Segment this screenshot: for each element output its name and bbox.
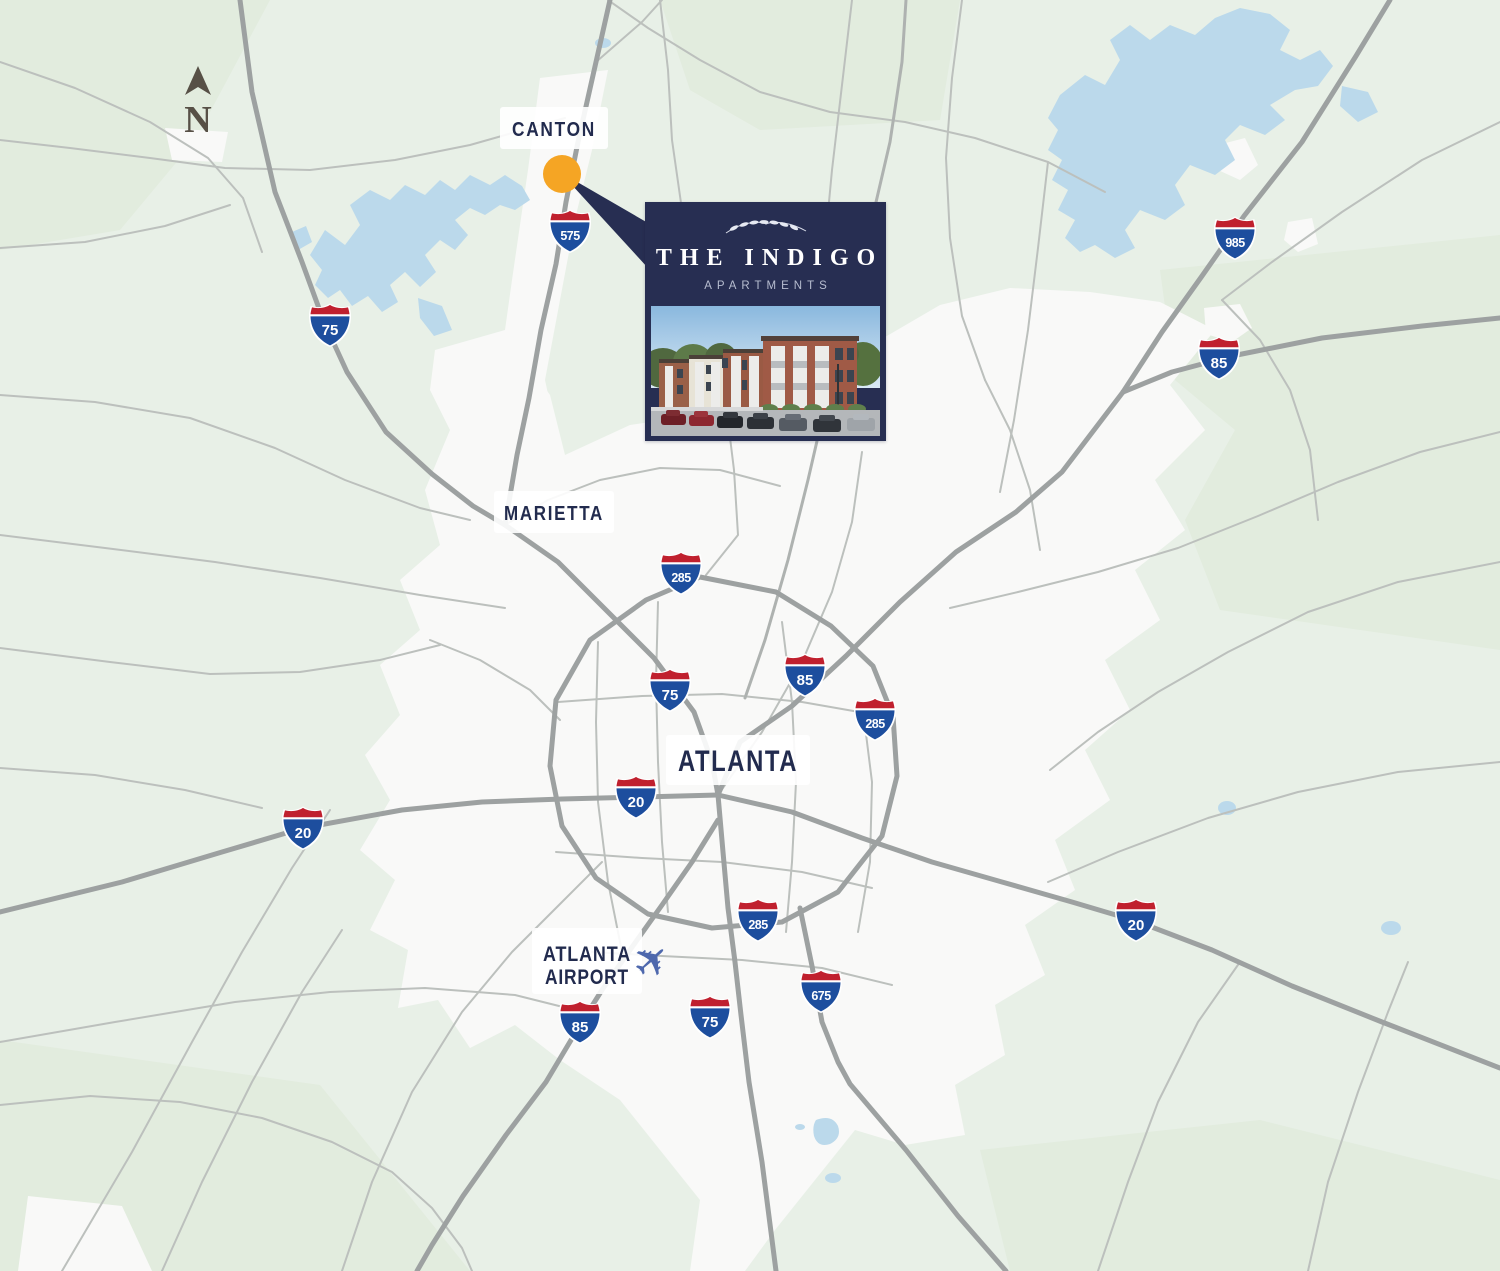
svg-text:985: 985 [1225, 236, 1245, 250]
property-name: THE INDIGO [645, 245, 886, 272]
svg-text:75: 75 [322, 322, 339, 339]
svg-text:20: 20 [295, 825, 312, 842]
svg-text:285: 285 [865, 717, 885, 731]
svg-text:20: 20 [628, 794, 645, 811]
svg-text:20: 20 [1128, 917, 1145, 934]
airport-label-line2: AIRPORT [545, 966, 629, 989]
svg-text:75: 75 [662, 687, 679, 704]
atlanta-label: ATLANTA [678, 745, 798, 778]
property-photo [651, 306, 880, 436]
property-type: APARTMENTS [645, 280, 886, 292]
svg-text:75: 75 [702, 1014, 719, 1031]
marietta-label: MARIETTA [504, 503, 604, 525]
property-location-marker [543, 155, 581, 193]
svg-text:285: 285 [748, 918, 768, 932]
atlanta-metro-map: 575 75 985 85 285 75 85 285 20 20 285 [0, 0, 1500, 1271]
svg-text:85: 85 [572, 1019, 589, 1036]
laurel-icon [645, 217, 886, 237]
svg-text:85: 85 [1211, 355, 1228, 372]
svg-text:85: 85 [797, 672, 814, 689]
property-callout-card: THE INDIGO APARTMENTS [645, 202, 886, 441]
canton-label: CANTON [512, 119, 596, 141]
compass-n-label: N [184, 99, 211, 141]
svg-text:575: 575 [560, 229, 580, 243]
svg-text:285: 285 [671, 571, 691, 585]
airport-label-line1: ATLANTA [543, 943, 631, 966]
svg-text:675: 675 [811, 989, 831, 1003]
